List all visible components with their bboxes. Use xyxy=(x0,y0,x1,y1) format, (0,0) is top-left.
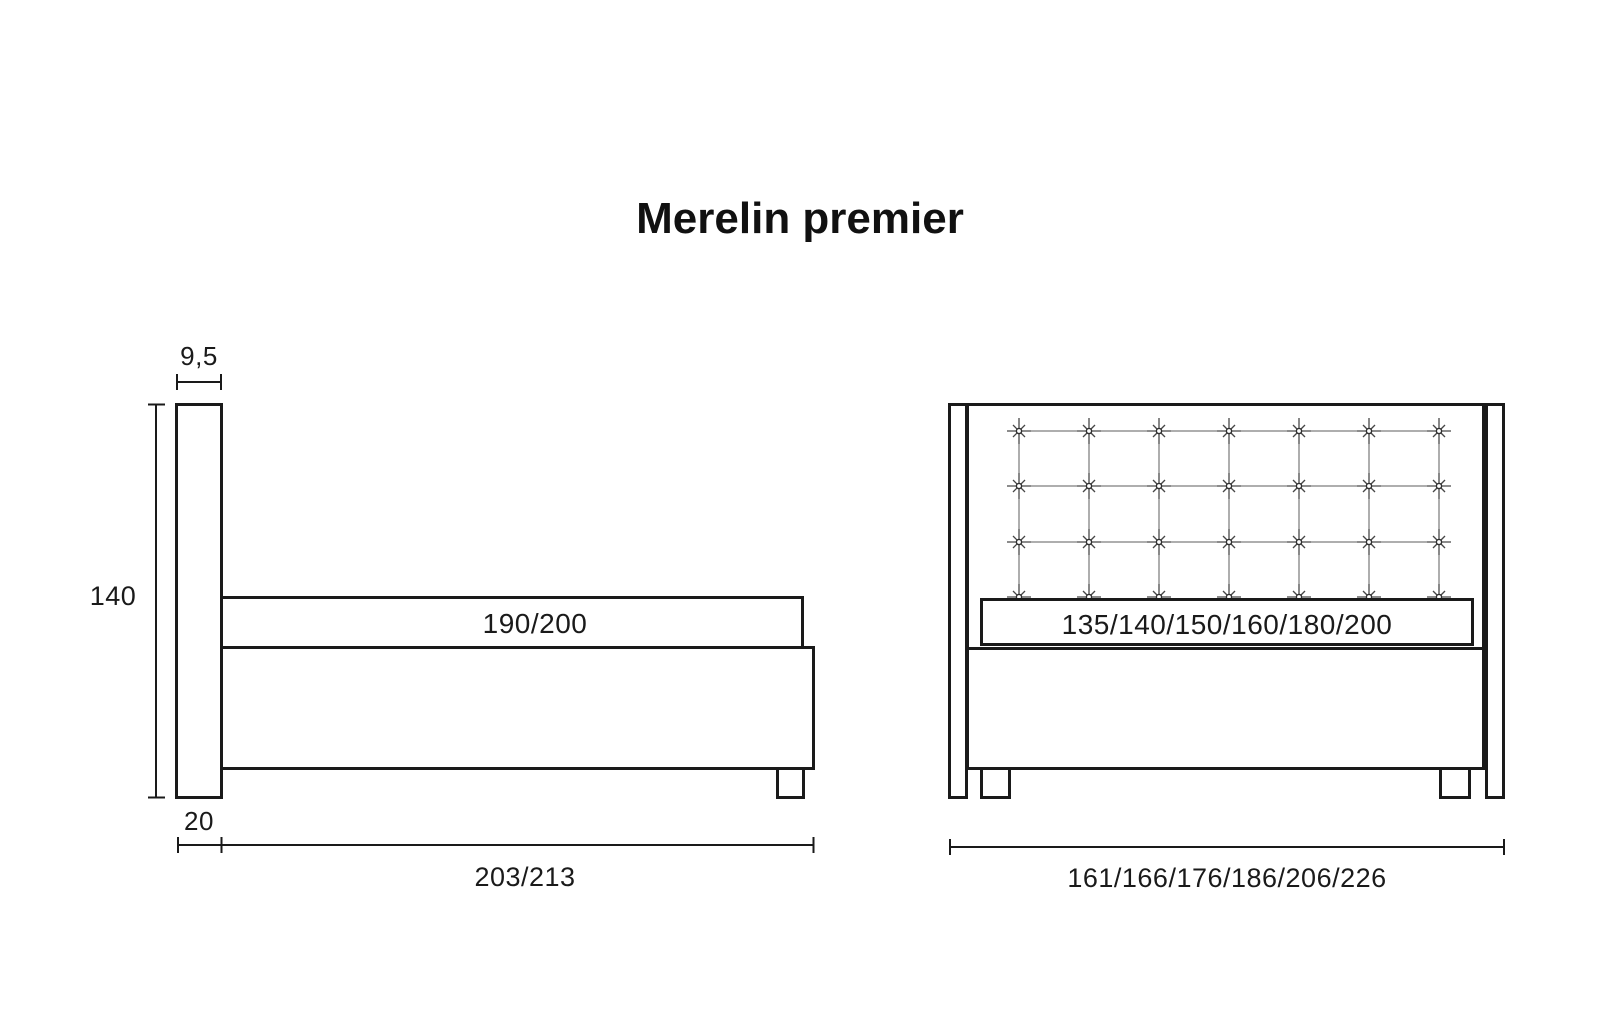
side-headboard-thickness-dim: 9,5 xyxy=(177,341,221,390)
front-right-post-rect xyxy=(1487,405,1504,798)
front-body-rect xyxy=(968,405,1484,769)
tuft-button-icon xyxy=(1226,483,1231,488)
tuft-button-icon xyxy=(1086,539,1091,544)
tuft-button-icon xyxy=(1296,539,1301,544)
tuft-button-icon xyxy=(1156,483,1161,488)
side-mattress-length-label: 190/200 xyxy=(483,608,588,639)
side-leg-rect xyxy=(778,769,804,798)
tuft-button-icon xyxy=(1016,428,1021,433)
overall-width-label: 161/166/176/186/206/226 xyxy=(1067,863,1386,893)
tuft-button-icon xyxy=(1436,428,1441,433)
side-view: 9,5 140 190/200 20 203/213 xyxy=(90,341,814,892)
tuft-button-icon xyxy=(1226,428,1231,433)
tuft-button-icon xyxy=(1296,483,1301,488)
tuft-button-icon xyxy=(1296,428,1301,433)
tuft-button-icon xyxy=(1366,539,1371,544)
bed-dimension-diagram: Merelin premier 9,5 140 xyxy=(0,0,1600,1010)
front-right-leg-rect xyxy=(1441,769,1470,798)
side-headboard-rect xyxy=(177,405,222,798)
tuft-button-icon xyxy=(1016,483,1021,488)
front-left-post-rect xyxy=(950,405,967,798)
tuft-button-icon xyxy=(1156,539,1161,544)
tuft-button-icon xyxy=(1016,539,1021,544)
height-dim-label: 140 xyxy=(90,581,137,611)
tuft-button-icon xyxy=(1086,428,1091,433)
tuft-button-icon xyxy=(1366,428,1371,433)
tuft-button-icon xyxy=(1226,539,1231,544)
front-left-leg-rect xyxy=(982,769,1010,798)
side-base-rect xyxy=(222,648,814,769)
side-length-dim: 20 203/213 xyxy=(178,806,814,892)
front-width-dim: 161/166/176/186/206/226 xyxy=(950,839,1504,893)
diagram-title: Merelin premier xyxy=(636,194,964,243)
side-height-dim: 140 xyxy=(90,404,165,798)
tuft-button-icon xyxy=(1436,483,1441,488)
tuft-button-icon xyxy=(1366,483,1371,488)
thickness-dim-label: 9,5 xyxy=(180,341,218,371)
tuft-button-icon xyxy=(1156,428,1161,433)
front-view: 135/140/150/160/180/200 161/166/176/186/… xyxy=(950,405,1505,894)
tuft-button-icon xyxy=(1436,539,1441,544)
diagram-svg: Merelin premier 9,5 140 xyxy=(0,0,1600,1010)
front-mattress-width-label: 135/140/150/160/180/200 xyxy=(1062,609,1393,640)
overall-length-label: 203/213 xyxy=(474,862,575,892)
headboard-foot-depth-label: 20 xyxy=(184,806,214,836)
tuft-button-icon xyxy=(1086,483,1091,488)
